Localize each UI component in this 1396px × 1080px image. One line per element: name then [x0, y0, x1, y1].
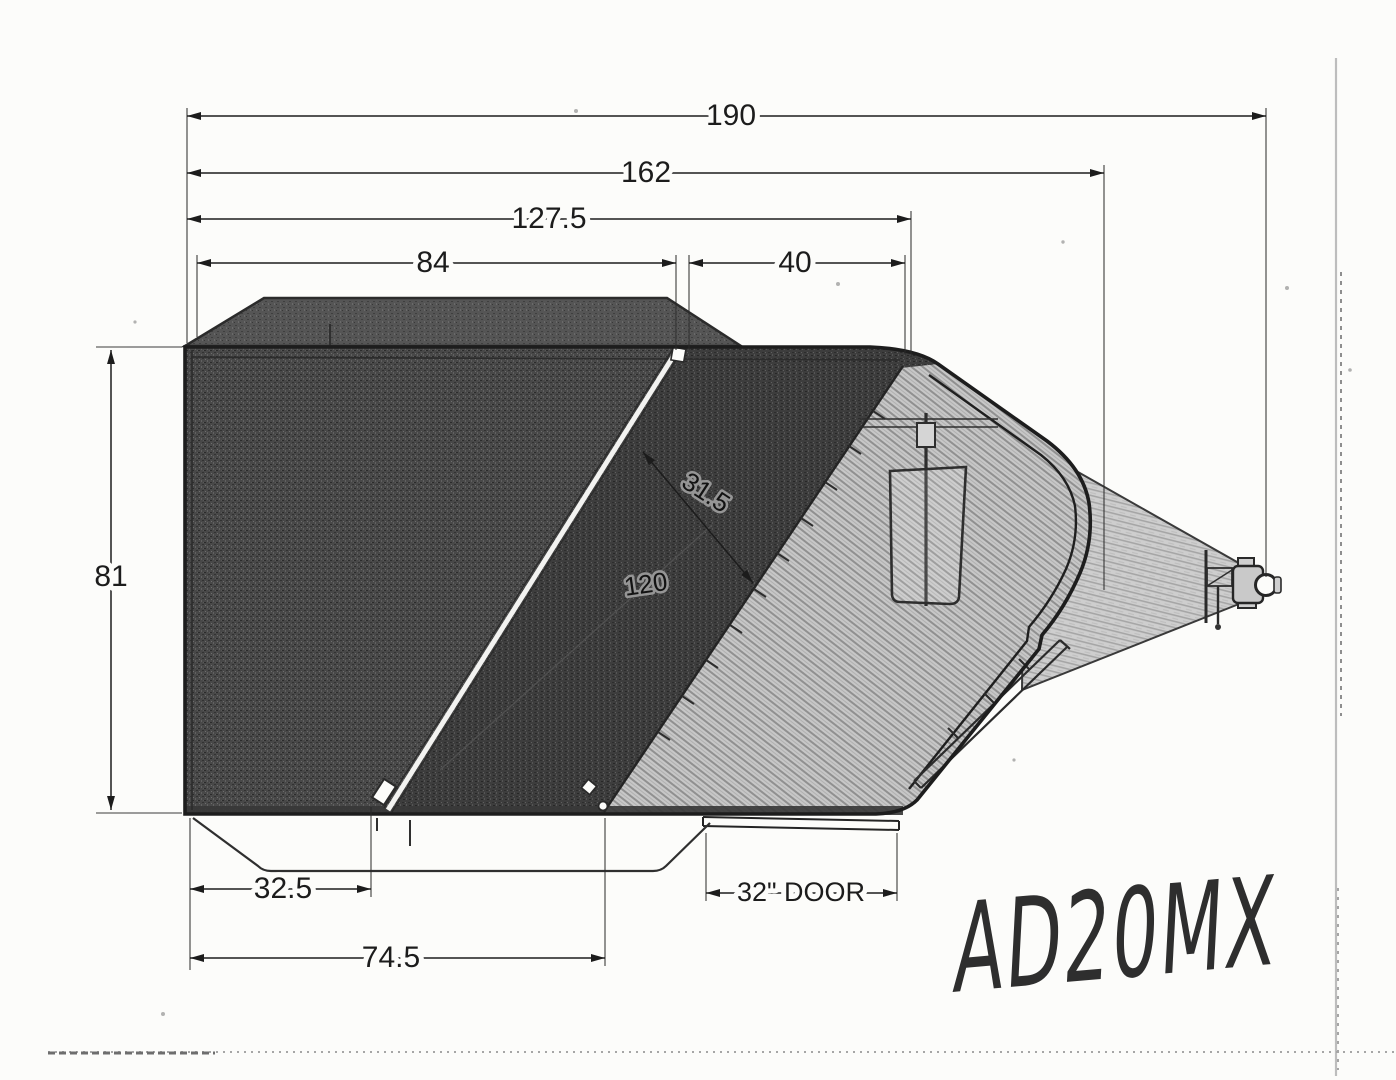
dim-front-top-length-label: 40 [778, 246, 811, 279]
dim-rear-bottom-length-label: 32.5 [254, 872, 312, 905]
tarp-hump [185, 298, 741, 346]
dimension-side-door: 32" DOOR [706, 877, 897, 907]
dim-overall-length-label: 190 [706, 99, 756, 132]
svg-text:AD20MX: AD20MX [950, 849, 1280, 1021]
trailer-side-view-drawing: 190 162 127.5 84 40 81 31.5 120 [0, 0, 1396, 1080]
side-door-sill [703, 817, 899, 830]
dim-body-top-length-label: 127.5 [511, 202, 586, 235]
under-tray [193, 818, 710, 871]
dimension-front-top-length: 40 [689, 246, 905, 279]
dim-incline-length-label: 120 [622, 566, 669, 602]
dimension-overall-length: 190 [187, 99, 1266, 132]
dim-length-to-nose-label: 162 [621, 156, 671, 189]
dim-rear-top-length-label: 84 [416, 246, 449, 279]
dim-side-door-label: 32" DOOR [737, 877, 865, 907]
dimension-rear-bottom-length: 32.5 [190, 872, 371, 905]
dim-bottom-to-incline-label: 74.5 [362, 941, 420, 974]
trailer-body [185, 298, 1281, 871]
dimension-bottom-to-incline: 74.5 [190, 941, 605, 974]
dimension-body-height: 81 [94, 350, 127, 810]
dimension-length-to-nose: 162 [187, 156, 1104, 189]
dim-body-height-label: 81 [94, 560, 127, 593]
dimension-incline-length: 120 [622, 566, 669, 602]
dimension-body-top-length: 127.5 [187, 202, 911, 235]
scanned-drawing-page: 190 162 127.5 84 40 81 31.5 120 [0, 0, 1396, 1080]
handwritten-model-code: AD20MX [950, 849, 1280, 1021]
dimension-rear-top-length: 84 [197, 246, 676, 279]
hitch-coupler [1233, 558, 1281, 608]
